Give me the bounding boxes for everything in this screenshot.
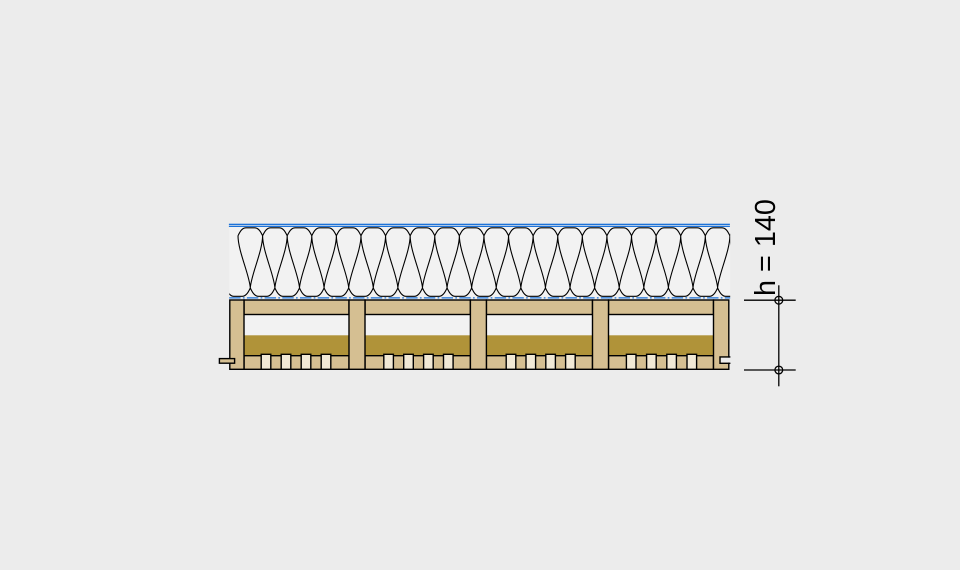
svg-text:h = 140: h = 140: [750, 199, 782, 296]
